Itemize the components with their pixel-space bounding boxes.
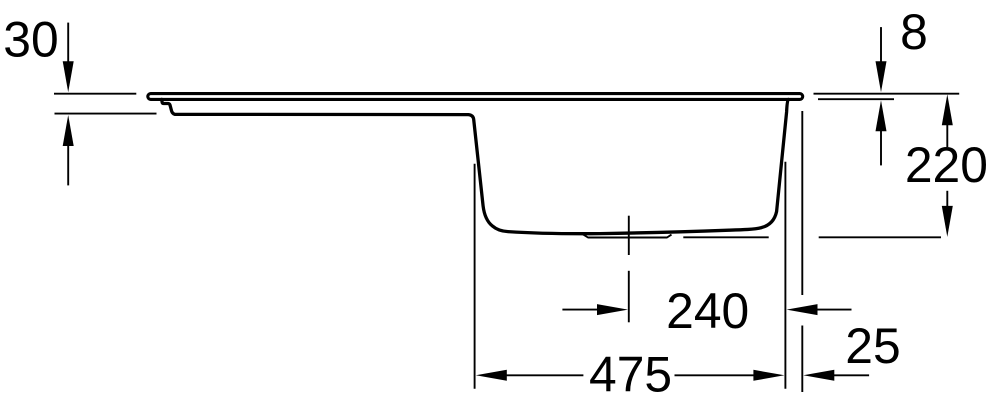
svg-text:30: 30 xyxy=(3,12,58,68)
svg-text:8: 8 xyxy=(900,4,928,60)
svg-text:475: 475 xyxy=(589,347,672,401)
svg-text:220: 220 xyxy=(905,137,988,193)
svg-text:25: 25 xyxy=(845,318,900,374)
svg-text:240: 240 xyxy=(666,283,749,339)
